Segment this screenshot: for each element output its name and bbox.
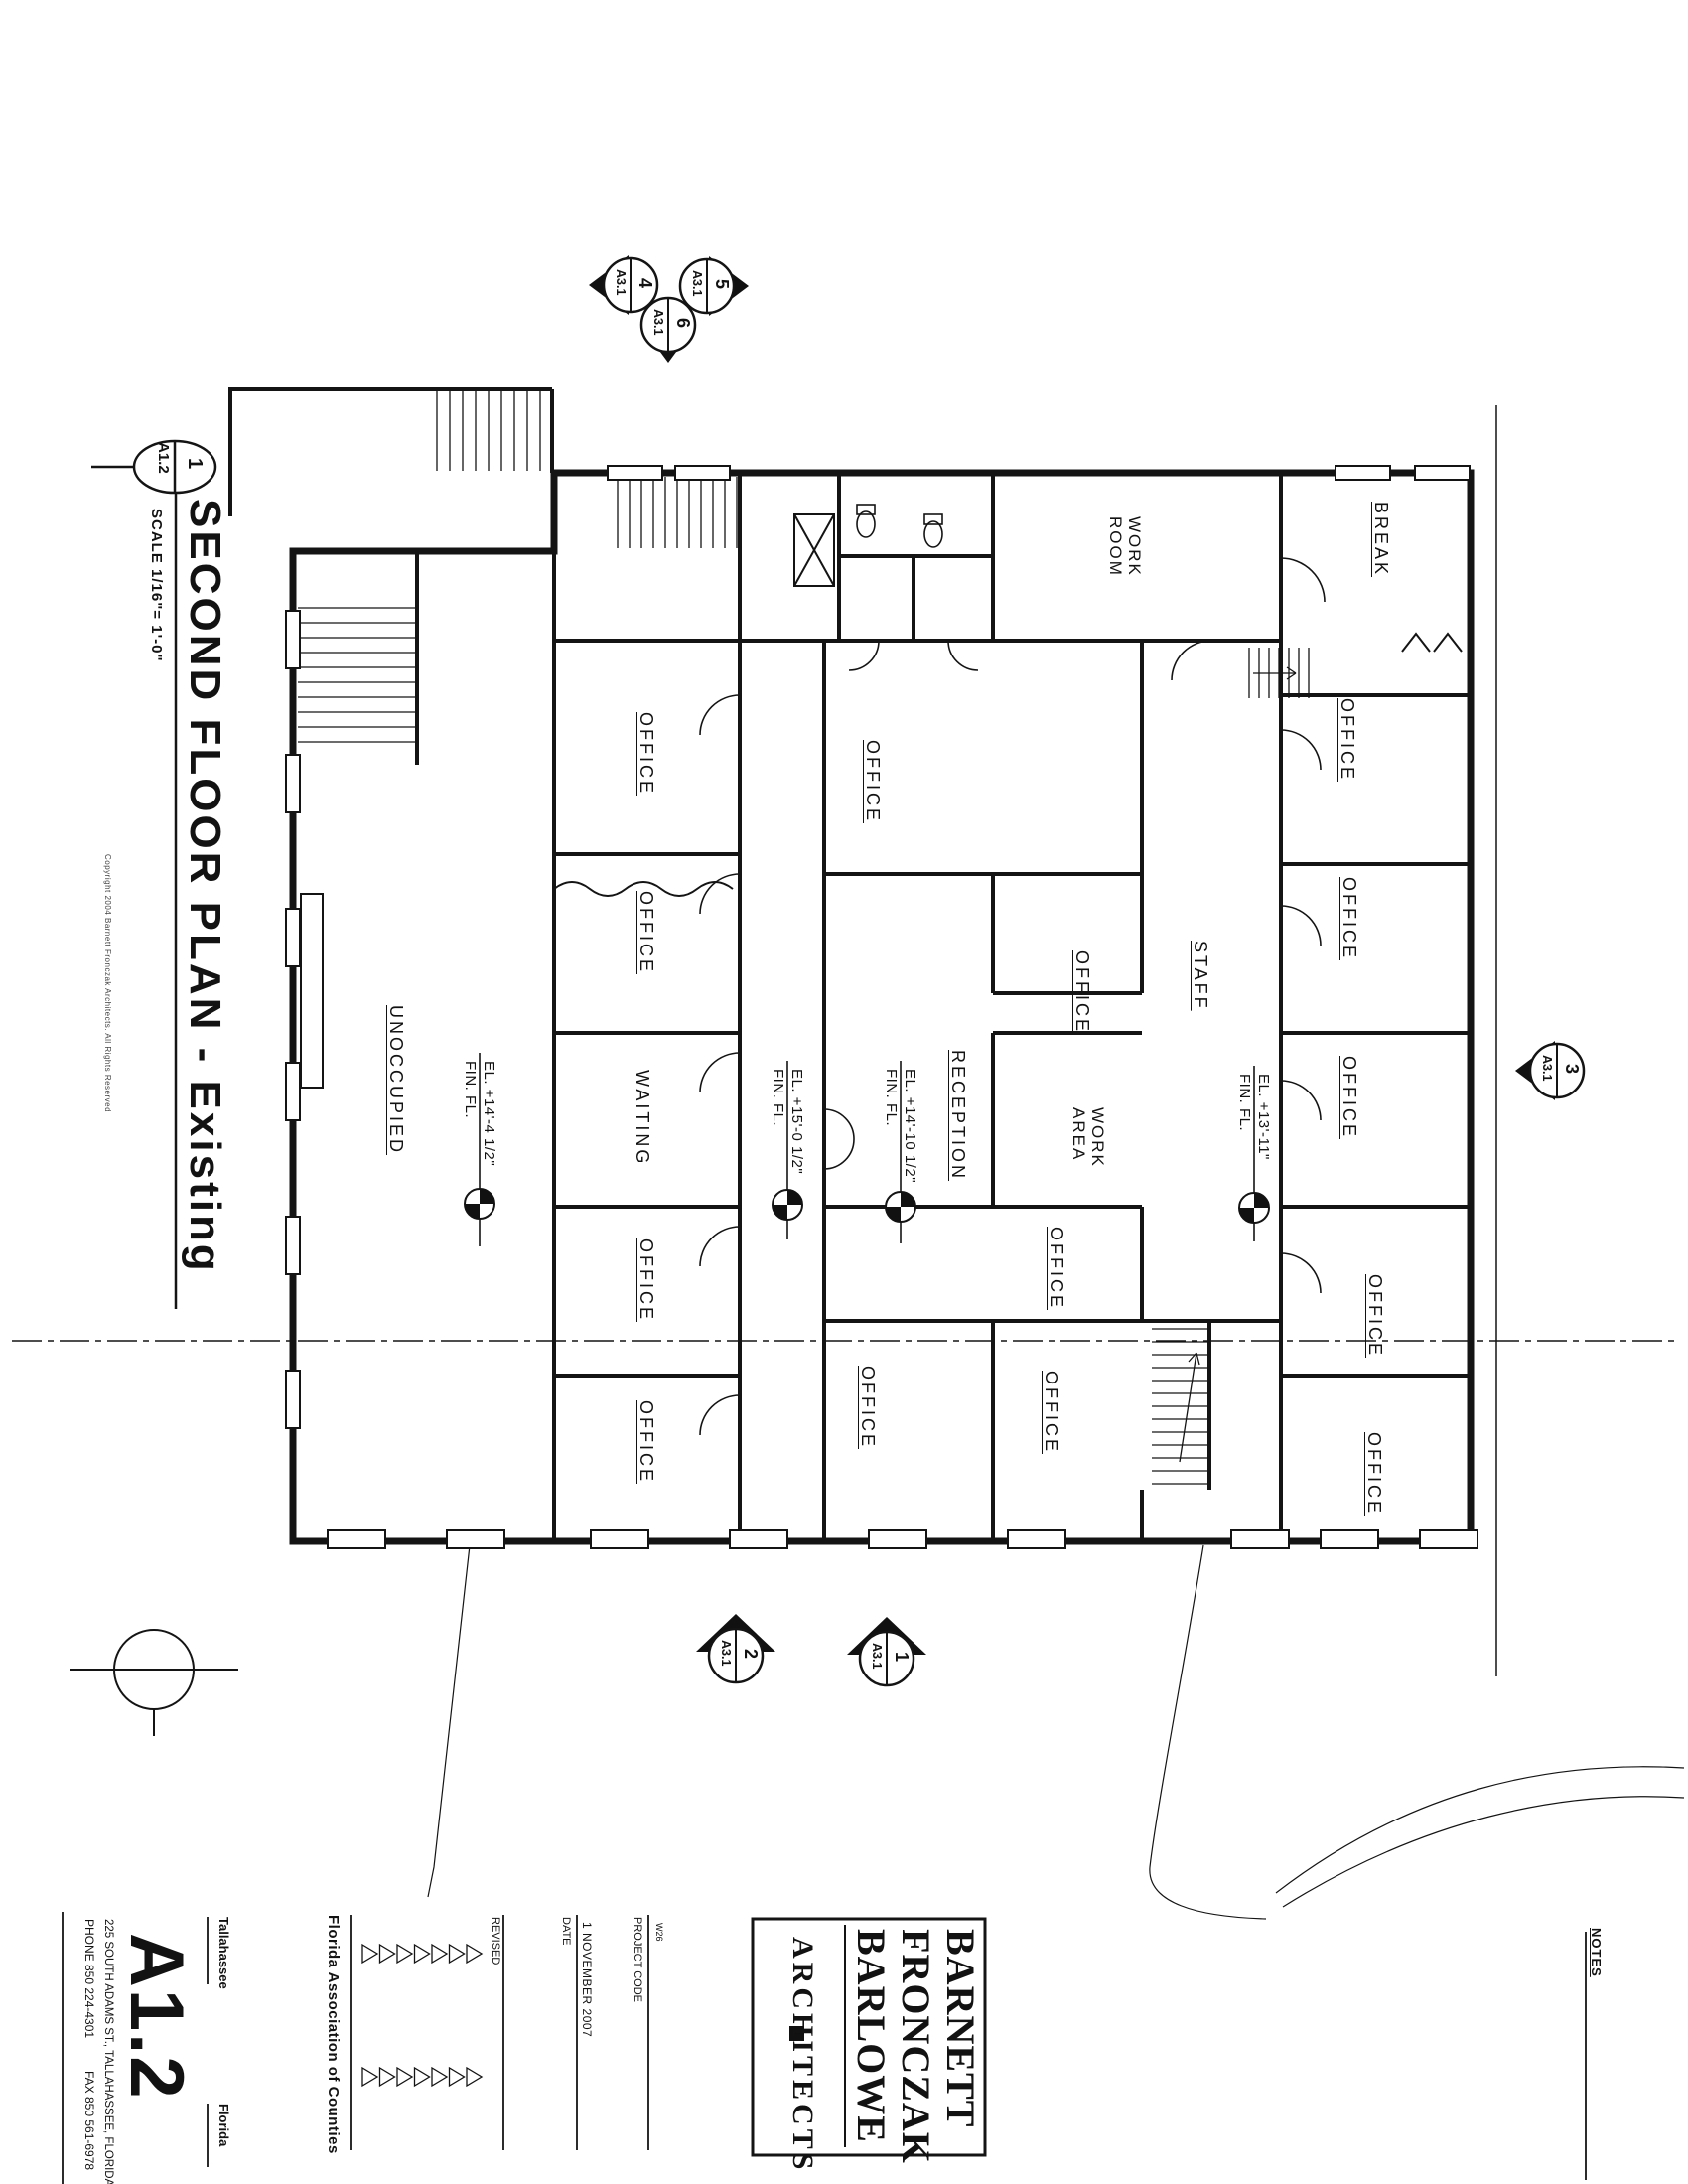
- elevation-label: EL. +15'-0 1/2": [788, 1069, 804, 1174]
- revision-triangle-icon: [432, 2068, 447, 2086]
- room-label: BREAK: [1371, 502, 1390, 577]
- revision-triangle-icon: [415, 1945, 430, 1963]
- revision-triangle-icon: [397, 2068, 412, 2086]
- revision-triangle-icon: [432, 1945, 447, 1963]
- room-label: OFFICE: [1365, 1274, 1384, 1358]
- section-marker-number: 4: [635, 278, 654, 288]
- elevation-fin-label: FIN. FL.: [770, 1069, 785, 1126]
- room-label: OFFICE: [1047, 1227, 1065, 1310]
- revision-triangle-icon: [362, 1945, 377, 1963]
- title-bubble-number: 1: [183, 458, 205, 469]
- revision-triangle-icon: [450, 1945, 465, 1963]
- room-label: UNOCCUPIED: [386, 1005, 405, 1155]
- revision-triangle-icon: [380, 2068, 395, 2086]
- notes-label: NOTES: [1589, 1928, 1603, 1977]
- firm-address: 225 SOUTH ADAMS ST., TALLAHASSEE, FLORID…: [102, 1919, 114, 2184]
- elevation-label: EL. +14'-10 1/2": [902, 1069, 917, 1183]
- revision-triangle-icon: [467, 2068, 482, 2086]
- elevation-label: EL. +13'-11": [1255, 1074, 1271, 1160]
- elevation-fin-label: FIN. FL.: [462, 1061, 478, 1118]
- section-marker-sheet: A3.1: [719, 1640, 733, 1666]
- room-label: OFFICE: [1364, 1432, 1383, 1516]
- section-marker-number: 6: [673, 318, 692, 328]
- revision-triangle-icon: [467, 1945, 482, 1963]
- plan-linework: [0, 0, 1688, 2184]
- room-label: STAFF: [1191, 941, 1209, 1011]
- sheet-number: A1.2: [115, 1933, 197, 2101]
- project-code-value: W26: [653, 1923, 663, 1942]
- firm-city: Tallahassee: [216, 1917, 230, 1989]
- room-label: OFFICE: [858, 1366, 877, 1449]
- revised-label: REVISED: [489, 1917, 500, 1965]
- project-code-label: PROJECT CODE: [631, 1917, 642, 2002]
- room-label: WAITING: [633, 1070, 651, 1166]
- revision-triangle-icon: [380, 1945, 395, 1963]
- room-label: OFFICE: [1337, 698, 1356, 782]
- room-label: WORK ROOM: [1106, 516, 1144, 577]
- section-marker-sheet: A3.1: [690, 270, 704, 296]
- section-marker-number: 3: [1562, 1064, 1581, 1074]
- room-label: OFFICE: [1072, 950, 1091, 1034]
- firm-state: Florida: [216, 2104, 230, 2146]
- room-label: OFFICE: [1339, 877, 1358, 960]
- room-label: OFFICE: [1339, 1056, 1358, 1139]
- copyright-note: Copyright 2004 Barnett Fronczak Architec…: [102, 854, 111, 1112]
- title-bubble-sheet: A1.2: [155, 442, 171, 474]
- room-label: OFFICE: [636, 712, 655, 796]
- date-value: 1 NOVEMBER 2007: [580, 1922, 593, 2037]
- drawing-title: SECOND FLOOR PLAN - Existing: [181, 499, 228, 1274]
- project-name: Florida Association of Counties: [325, 1915, 341, 2154]
- elevation-fin-label: FIN. FL.: [883, 1069, 899, 1126]
- drawing-scale: SCALE 1/16"= 1'-0": [148, 509, 164, 662]
- room-label: OFFICE: [636, 891, 655, 974]
- room-label: OFFICE: [863, 740, 882, 823]
- revision-triangle-icon: [450, 2068, 465, 2086]
- firm-suffix: ARCHITECTS: [786, 1937, 818, 2173]
- date-label: DATE: [559, 1917, 571, 1946]
- room-label: OFFICE: [636, 1238, 655, 1322]
- section-marker-number: 1: [892, 1652, 911, 1662]
- revision-triangle-icon: [362, 2068, 377, 2086]
- firm-names: BARNETT FRONCZAK BARLOWE: [849, 1929, 983, 2164]
- firm-fax: FAX 850 561-6978: [82, 2071, 95, 2170]
- room-label: OFFICE: [1042, 1371, 1060, 1454]
- section-marker-sheet: A3.1: [1540, 1055, 1554, 1081]
- room-label: WORK AREA: [1069, 1107, 1107, 1168]
- section-marker-number: 5: [712, 279, 731, 289]
- drawing-sheet: 1 A1.2 SECOND FLOOR PLAN - Existing SCAL…: [0, 0, 1688, 2184]
- firm-phone: PHONE 850 224-4301: [82, 1919, 95, 2038]
- room-label: OFFICE: [636, 1400, 655, 1484]
- section-marker-sheet: A3.1: [651, 309, 665, 335]
- section-marker-number: 2: [741, 1649, 760, 1659]
- revision-triangle-icon: [415, 2068, 430, 2086]
- elevation-fin-label: FIN. FL.: [1236, 1074, 1252, 1131]
- elevation-label: EL. +14'-4 1/2": [481, 1061, 496, 1166]
- revision-triangle-icon: [397, 1945, 412, 1963]
- section-marker-sheet: A3.1: [614, 269, 628, 295]
- room-label: RECEPTION: [948, 1050, 967, 1181]
- section-marker-sheet: A3.1: [870, 1643, 884, 1669]
